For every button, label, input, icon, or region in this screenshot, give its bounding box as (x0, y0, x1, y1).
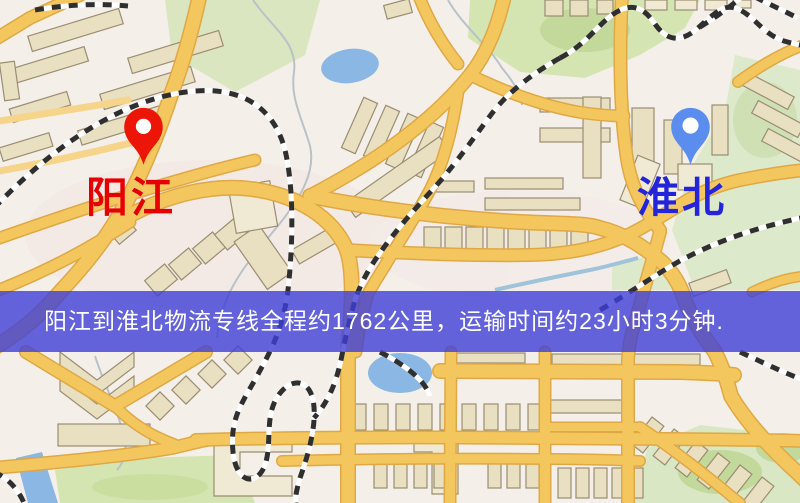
pin-icon (668, 104, 713, 168)
pin-body (671, 108, 710, 165)
pin-hole (682, 118, 698, 134)
destination-pin-marker[interactable] (668, 104, 713, 168)
route-info-banner: 阳江到淮北物流专线全程约1762公里，运输时间约23小时3分钟. (0, 291, 800, 352)
map-screenshot: 阳江 淮北 阳江到淮北物流专线全程约1762公里，运输时间约23小时3分钟. (0, 0, 800, 503)
origin-pin-marker[interactable] (121, 104, 166, 168)
origin-city-label: 阳江 (86, 177, 176, 219)
destination-city-label: 淮北 (637, 177, 727, 219)
base-map (0, 0, 800, 503)
pin-hole (136, 119, 151, 134)
pin-icon (121, 104, 166, 168)
pin-body (124, 108, 163, 165)
